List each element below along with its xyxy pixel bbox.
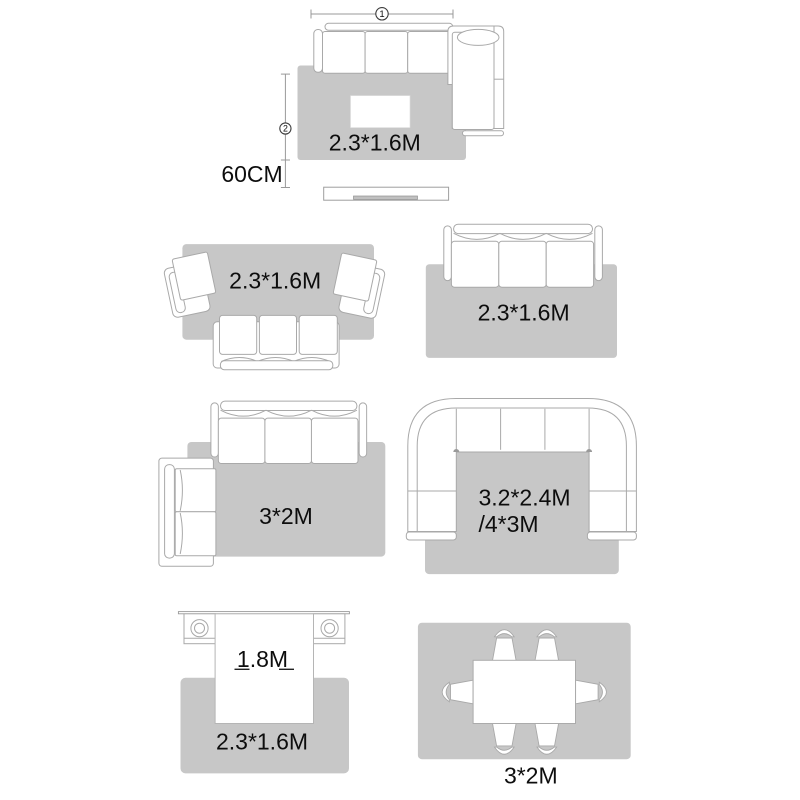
svg-text:2.3*1.6M: 2.3*1.6M xyxy=(229,268,321,294)
svg-text:/4*3M: /4*3M xyxy=(479,511,539,537)
svg-text:3.2*2.4M: 3.2*2.4M xyxy=(479,484,571,510)
svg-text:2.3*1.6M: 2.3*1.6M xyxy=(329,130,421,156)
svg-text:2.3*1.6M: 2.3*1.6M xyxy=(216,729,308,755)
svg-text:3*2M: 3*2M xyxy=(259,503,313,529)
svg-text:1: 1 xyxy=(379,9,384,20)
svg-text:2: 2 xyxy=(283,124,288,134)
svg-text:60CM: 60CM xyxy=(221,161,282,187)
svg-text:1.8M: 1.8M xyxy=(237,646,288,672)
svg-text:3*2M: 3*2M xyxy=(504,763,558,789)
svg-text:2.3*1.6M: 2.3*1.6M xyxy=(478,300,570,326)
